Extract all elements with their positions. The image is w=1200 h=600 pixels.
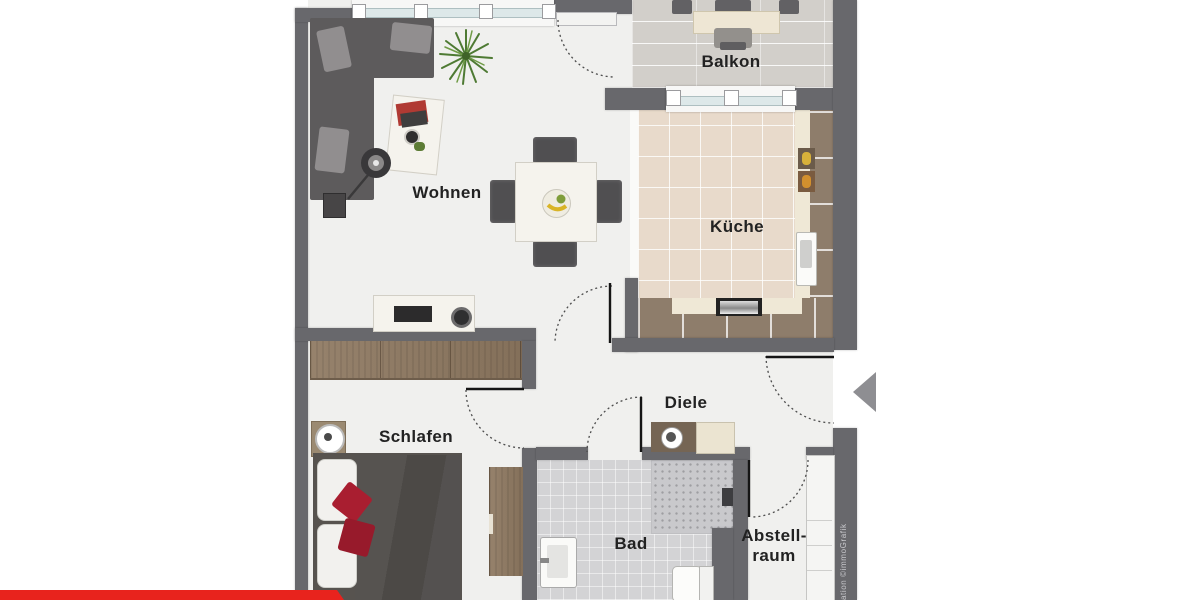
- bath-sink-basin: [547, 545, 568, 578]
- watermark-text: ation ©immoGrafik: [839, 430, 848, 600]
- wall-balcony-bottom-a: [605, 88, 670, 110]
- speaker: [451, 307, 472, 328]
- toilet-tank: [699, 566, 714, 600]
- room-label-wohnen: Wohnen: [412, 183, 481, 203]
- dresser-handle: [489, 514, 493, 534]
- room-label-kueche: Küche: [710, 217, 764, 237]
- sofa-cushion: [314, 126, 349, 173]
- storage-shelf: [806, 455, 835, 600]
- stove-front: [720, 301, 758, 314]
- table-plant: [414, 142, 425, 151]
- washing-machine-door-center: [666, 432, 676, 442]
- bath-faucet: [540, 558, 549, 563]
- room-label-balkon: Balkon: [701, 52, 760, 72]
- side-table: [323, 193, 346, 218]
- kitchen-sink-basin: [800, 240, 812, 268]
- room-label-abstellraum-line1: Abstell-: [741, 526, 807, 546]
- counter-jar-2-content: [802, 175, 811, 188]
- balcony-chair-back: [720, 42, 746, 50]
- accent-bar: [0, 590, 344, 600]
- dining-chair: [533, 137, 577, 164]
- bedside-lamp-center: [324, 433, 332, 441]
- window-mullion: [724, 90, 739, 106]
- fruit-bowl: [542, 189, 571, 218]
- toilet-bowl: [672, 566, 702, 600]
- dining-chair: [595, 180, 622, 223]
- floor-plan: Wohnen Balkon Küche Schlafen Diele Bad A…: [0, 0, 1200, 600]
- wall-right-upper: [833, 0, 857, 350]
- window-mullion: [666, 90, 681, 106]
- wall-kitchen-bottom: [612, 338, 834, 352]
- window-living-glass: [358, 8, 550, 18]
- dining-chair: [490, 180, 517, 223]
- dining-chair: [533, 240, 577, 267]
- balcony-chair: [672, 0, 692, 14]
- sofa-cushion: [390, 22, 433, 54]
- floor-lamp-center: [373, 160, 379, 166]
- wall-bedroom-bath: [522, 448, 537, 600]
- wall-left: [295, 8, 308, 600]
- window-mullion: [414, 4, 428, 19]
- floor-transition-strip: [630, 110, 638, 278]
- storage-shelf-divider: [807, 545, 832, 546]
- wall-balcony-bottom-b: [793, 88, 835, 110]
- wardrobe: [310, 341, 522, 380]
- shower-fixture: [722, 488, 733, 506]
- counter-jar-1-content: [802, 152, 811, 165]
- window-mullion: [542, 4, 556, 19]
- room-label-bad: Bad: [614, 534, 647, 554]
- tv: [394, 306, 432, 322]
- entrance-arrow-icon: [853, 372, 876, 412]
- wall-bedroom-hall-stub: [522, 341, 536, 389]
- balcony-door-leaf: [556, 12, 617, 26]
- storage-shelf-divider: [807, 570, 832, 571]
- wall-bath-right-lower: [712, 528, 733, 600]
- balcony-chair: [779, 0, 799, 14]
- storage-shelf-divider: [807, 520, 832, 521]
- room-label-schlafen: Schlafen: [379, 427, 453, 447]
- window-mullion: [782, 90, 797, 106]
- window-mullion: [479, 4, 493, 19]
- room-label-diele: Diele: [665, 393, 708, 413]
- room-label-abstellraum-line2: raum: [741, 546, 807, 566]
- room-label-abstellraum: Abstell- raum: [741, 526, 807, 566]
- dresser: [489, 467, 523, 576]
- hall-cabinet: [696, 422, 735, 454]
- window-mullion: [352, 4, 366, 19]
- wall-bath-top-a: [536, 447, 588, 460]
